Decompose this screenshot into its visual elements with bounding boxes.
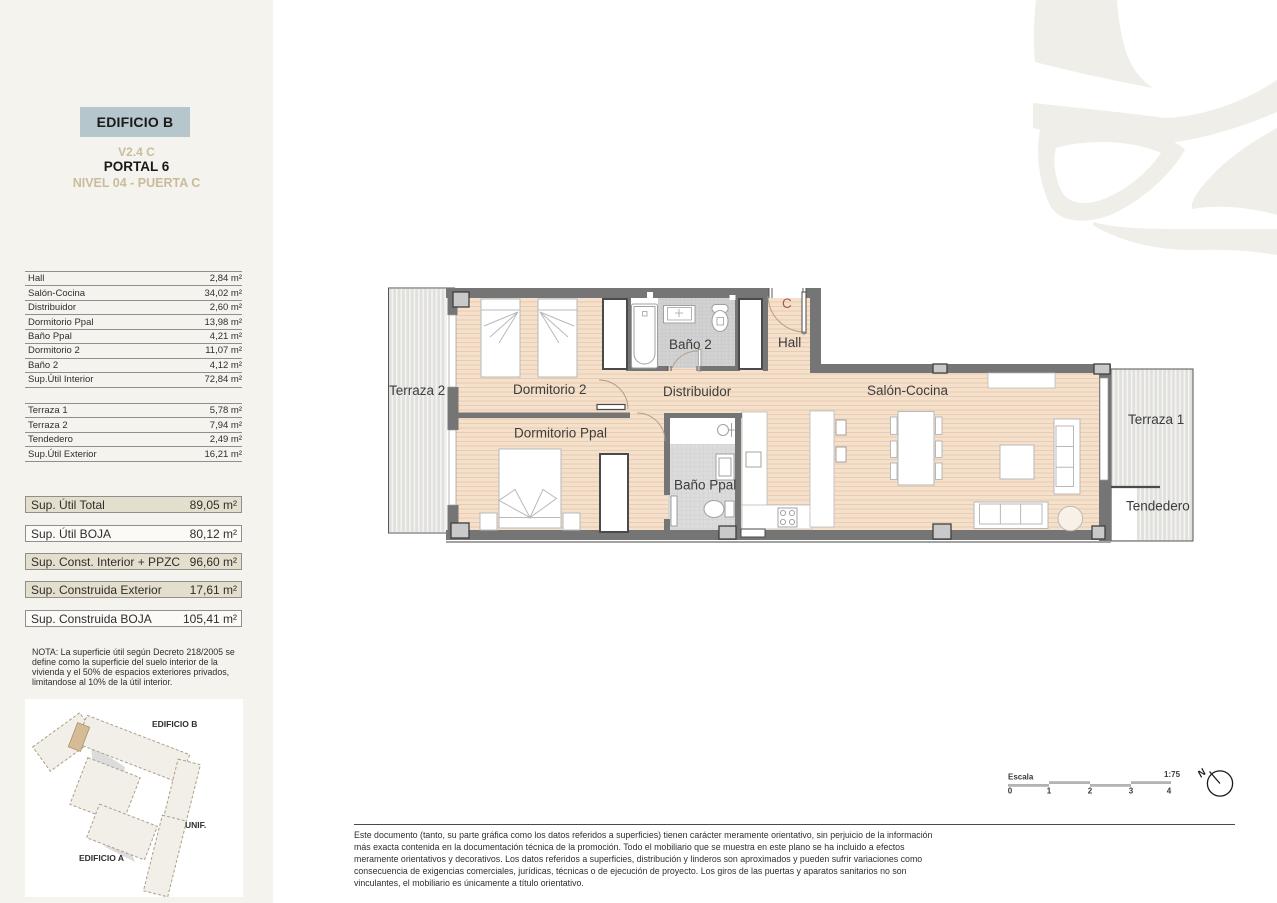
svg-text:Terraza 2: Terraza 2: [389, 383, 445, 398]
svg-text:EDIFICIO B: EDIFICIO B: [152, 719, 197, 729]
svg-text:N: N: [1196, 767, 1209, 781]
svg-text:3: 3: [1129, 787, 1134, 796]
svg-text:Dormitorio Ppal: Dormitorio Ppal: [514, 426, 607, 441]
svg-text:UNIF.: UNIF.: [185, 820, 206, 830]
svg-text:Baño Ppal: Baño Ppal: [674, 478, 736, 493]
svg-text:Terraza 1: Terraza 1: [1128, 412, 1184, 427]
svg-text:Dormitorio 2: Dormitorio 2: [513, 382, 587, 397]
svg-text:Distribuidor: Distribuidor: [663, 384, 732, 399]
svg-text:2: 2: [1088, 787, 1093, 796]
svg-text:Baño 2: Baño 2: [669, 337, 712, 352]
svg-text:4: 4: [1167, 787, 1172, 796]
svg-text:Salón-Cocina: Salón-Cocina: [867, 383, 949, 398]
svg-text:0: 0: [1008, 787, 1013, 796]
svg-text:Tendedero: Tendedero: [1126, 499, 1190, 514]
svg-text:Escala: Escala: [1008, 773, 1034, 782]
svg-text:1: 1: [1047, 787, 1052, 796]
svg-text:Hall: Hall: [778, 335, 801, 350]
svg-text:1:75: 1:75: [1164, 770, 1181, 779]
svg-text:EDIFICIO A: EDIFICIO A: [79, 853, 124, 863]
svg-text:C: C: [782, 296, 792, 311]
